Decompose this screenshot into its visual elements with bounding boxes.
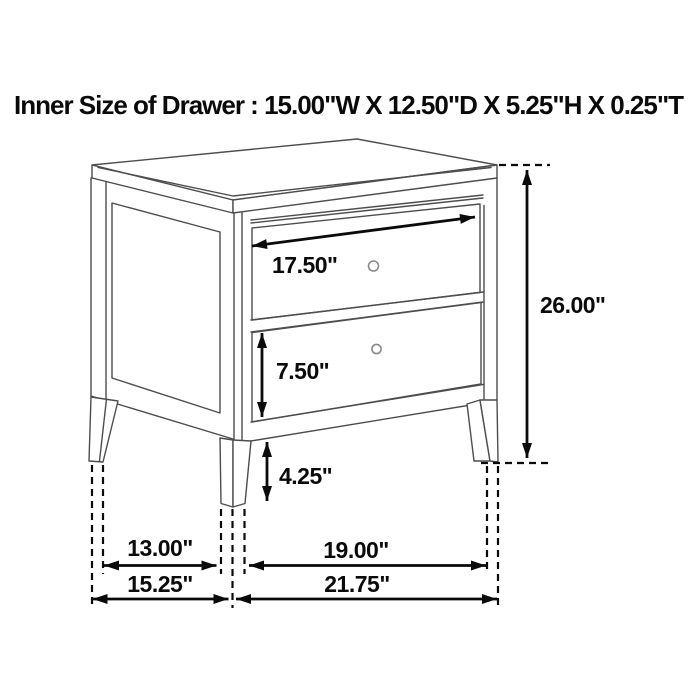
drawer-face-height-label: 7.50" bbox=[276, 358, 329, 384]
front-leg-span-label: 19.00" bbox=[323, 537, 388, 563]
corner-post bbox=[234, 213, 242, 441]
front-left-leg-front bbox=[233, 440, 251, 507]
dimension-diagram-page: Inner Size of Drawer : 15.00"W X 12.50"D… bbox=[0, 0, 700, 700]
side-depth-label: 15.25" bbox=[127, 571, 192, 597]
overall-height-label: 26.00" bbox=[540, 292, 605, 318]
nightstand-drawing bbox=[89, 139, 498, 507]
side-leg-span-label: 13.00" bbox=[127, 535, 192, 561]
nightstand-dimension-diagram: Inner Size of Drawer : 15.00"W X 12.50"D… bbox=[0, 0, 700, 700]
page-title: Inner Size of Drawer : 15.00"W X 12.50"D… bbox=[14, 90, 684, 120]
front-width-label: 21.75" bbox=[324, 571, 389, 597]
drawer-front bbox=[251, 178, 497, 441]
tabletop bbox=[92, 139, 497, 213]
leg-height-label: 4.25" bbox=[279, 463, 332, 489]
bottom-drawer-knob bbox=[372, 344, 381, 353]
top-drawer-knob bbox=[369, 261, 379, 271]
front-left-leg-side bbox=[220, 438, 233, 507]
drawer-width-label: 17.50" bbox=[272, 252, 337, 278]
